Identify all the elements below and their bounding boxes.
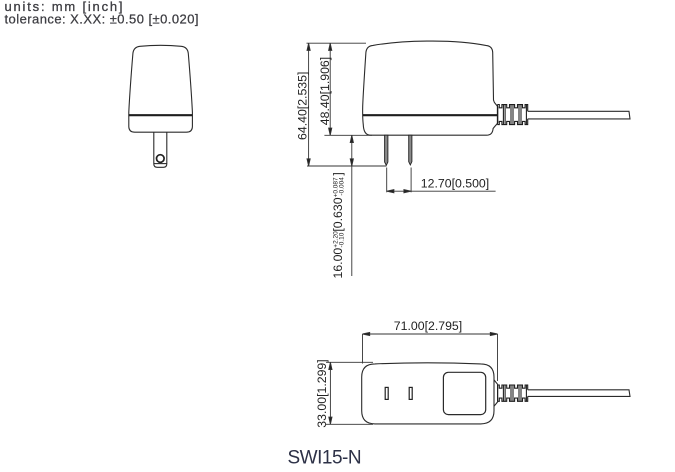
svg-text:33.00[1.299]: 33.00[1.299] xyxy=(315,359,329,427)
svg-text:SWI15-N: SWI15-N xyxy=(288,448,362,469)
svg-text:tolerance: X.XX: ±0.50 [±0.020: tolerance: X.XX: ±0.50 [±0.020] xyxy=(5,12,199,27)
svg-text:48.40[1.906]: 48.40[1.906] xyxy=(318,57,332,125)
svg-text:12.70[0.500]: 12.70[0.500] xyxy=(421,177,489,191)
svg-text:64.40[2.535]: 64.40[2.535] xyxy=(296,72,310,140)
svg-text:71.00[2.795]: 71.00[2.795] xyxy=(394,319,462,333)
svg-text:16.00+2.20-0.10[0.630+0.087-0.: 16.00+2.20-0.10[0.630+0.087-0.004] xyxy=(331,172,345,278)
